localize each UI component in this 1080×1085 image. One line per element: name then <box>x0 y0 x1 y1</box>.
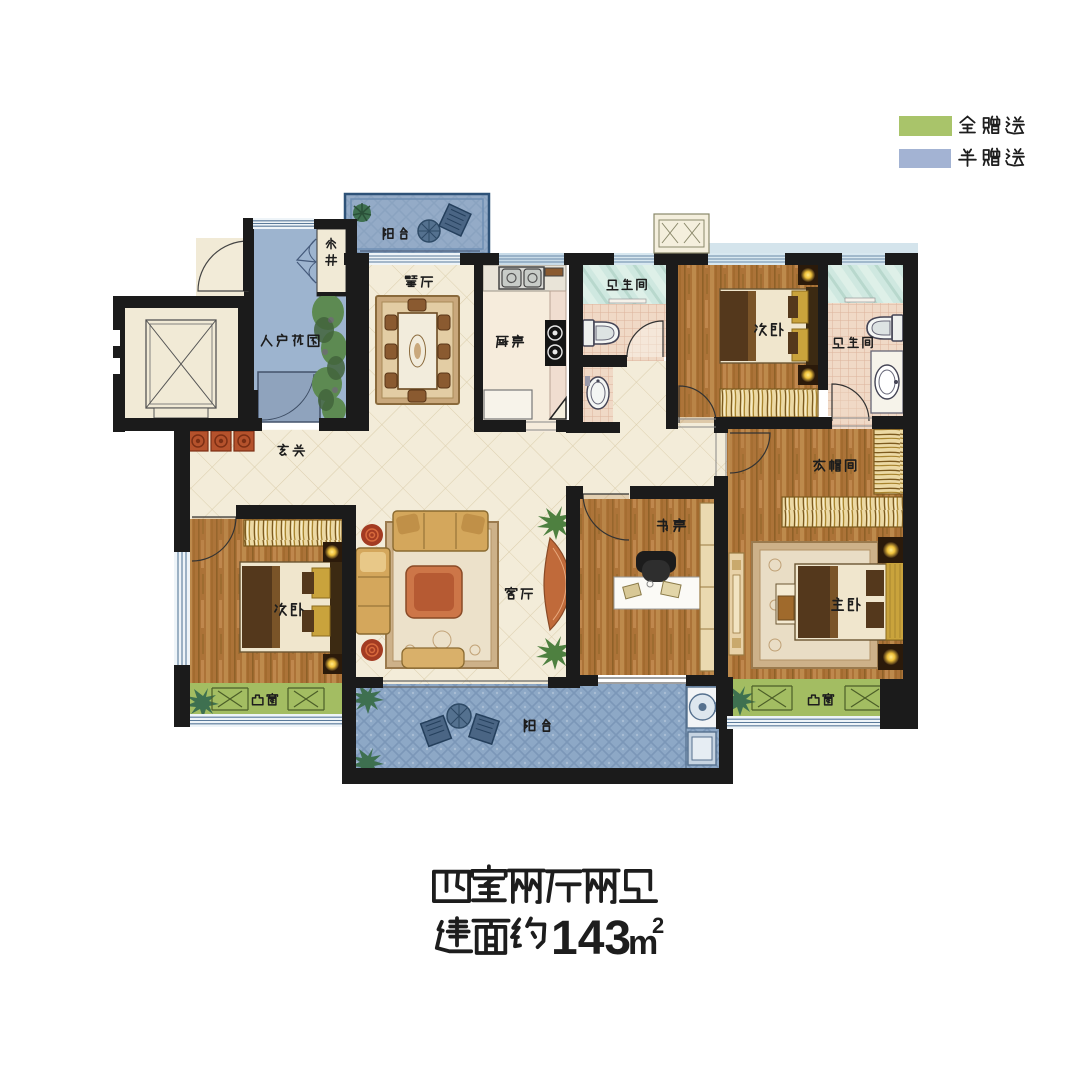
svg-text:143: 143 <box>551 912 631 965</box>
svg-text:2: 2 <box>652 913 664 938</box>
